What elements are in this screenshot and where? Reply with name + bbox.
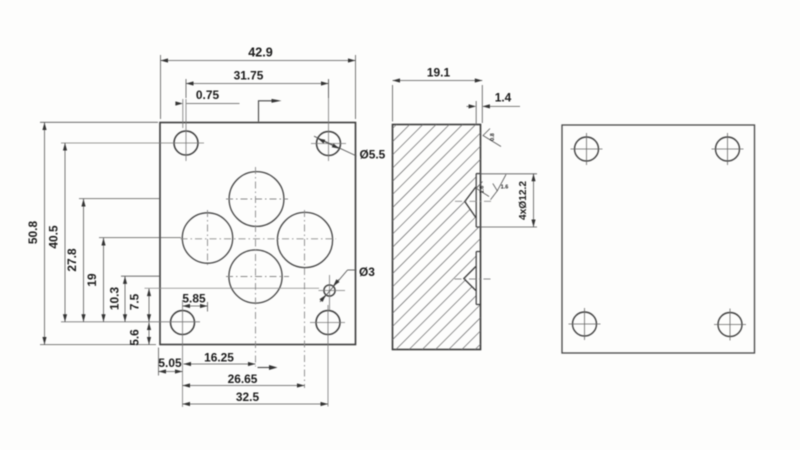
svg-text:Ø3: Ø3 <box>359 265 375 279</box>
svg-text:4xØ12.2: 4xØ12.2 <box>518 181 529 220</box>
svg-text:27.8: 27.8 <box>65 248 79 272</box>
svg-text:1.6: 1.6 <box>480 186 486 194</box>
svg-text:40.5: 40.5 <box>47 225 61 249</box>
svg-text:7.5: 7.5 <box>128 293 142 310</box>
svg-text:31.75: 31.75 <box>234 69 264 83</box>
svg-text:5.6: 5.6 <box>128 329 142 346</box>
svg-text:19.1: 19.1 <box>427 66 451 80</box>
svg-text:50.8: 50.8 <box>26 221 40 245</box>
svg-text:42.9: 42.9 <box>248 46 273 60</box>
svg-text:1.4: 1.4 <box>495 91 512 105</box>
svg-text:26.65: 26.65 <box>228 372 258 386</box>
svg-text:32.5: 32.5 <box>236 390 260 404</box>
svg-text:1.6: 1.6 <box>501 185 509 191</box>
svg-text:10.3: 10.3 <box>108 287 122 311</box>
svg-text:0.8: 0.8 <box>490 133 496 141</box>
svg-text:5.85: 5.85 <box>182 292 206 306</box>
svg-text:0.75: 0.75 <box>196 88 220 102</box>
svg-text:5.05: 5.05 <box>158 356 182 370</box>
svg-text:19: 19 <box>85 273 99 287</box>
svg-text:16.25: 16.25 <box>204 351 234 365</box>
svg-text:Ø5.5: Ø5.5 <box>360 148 386 162</box>
